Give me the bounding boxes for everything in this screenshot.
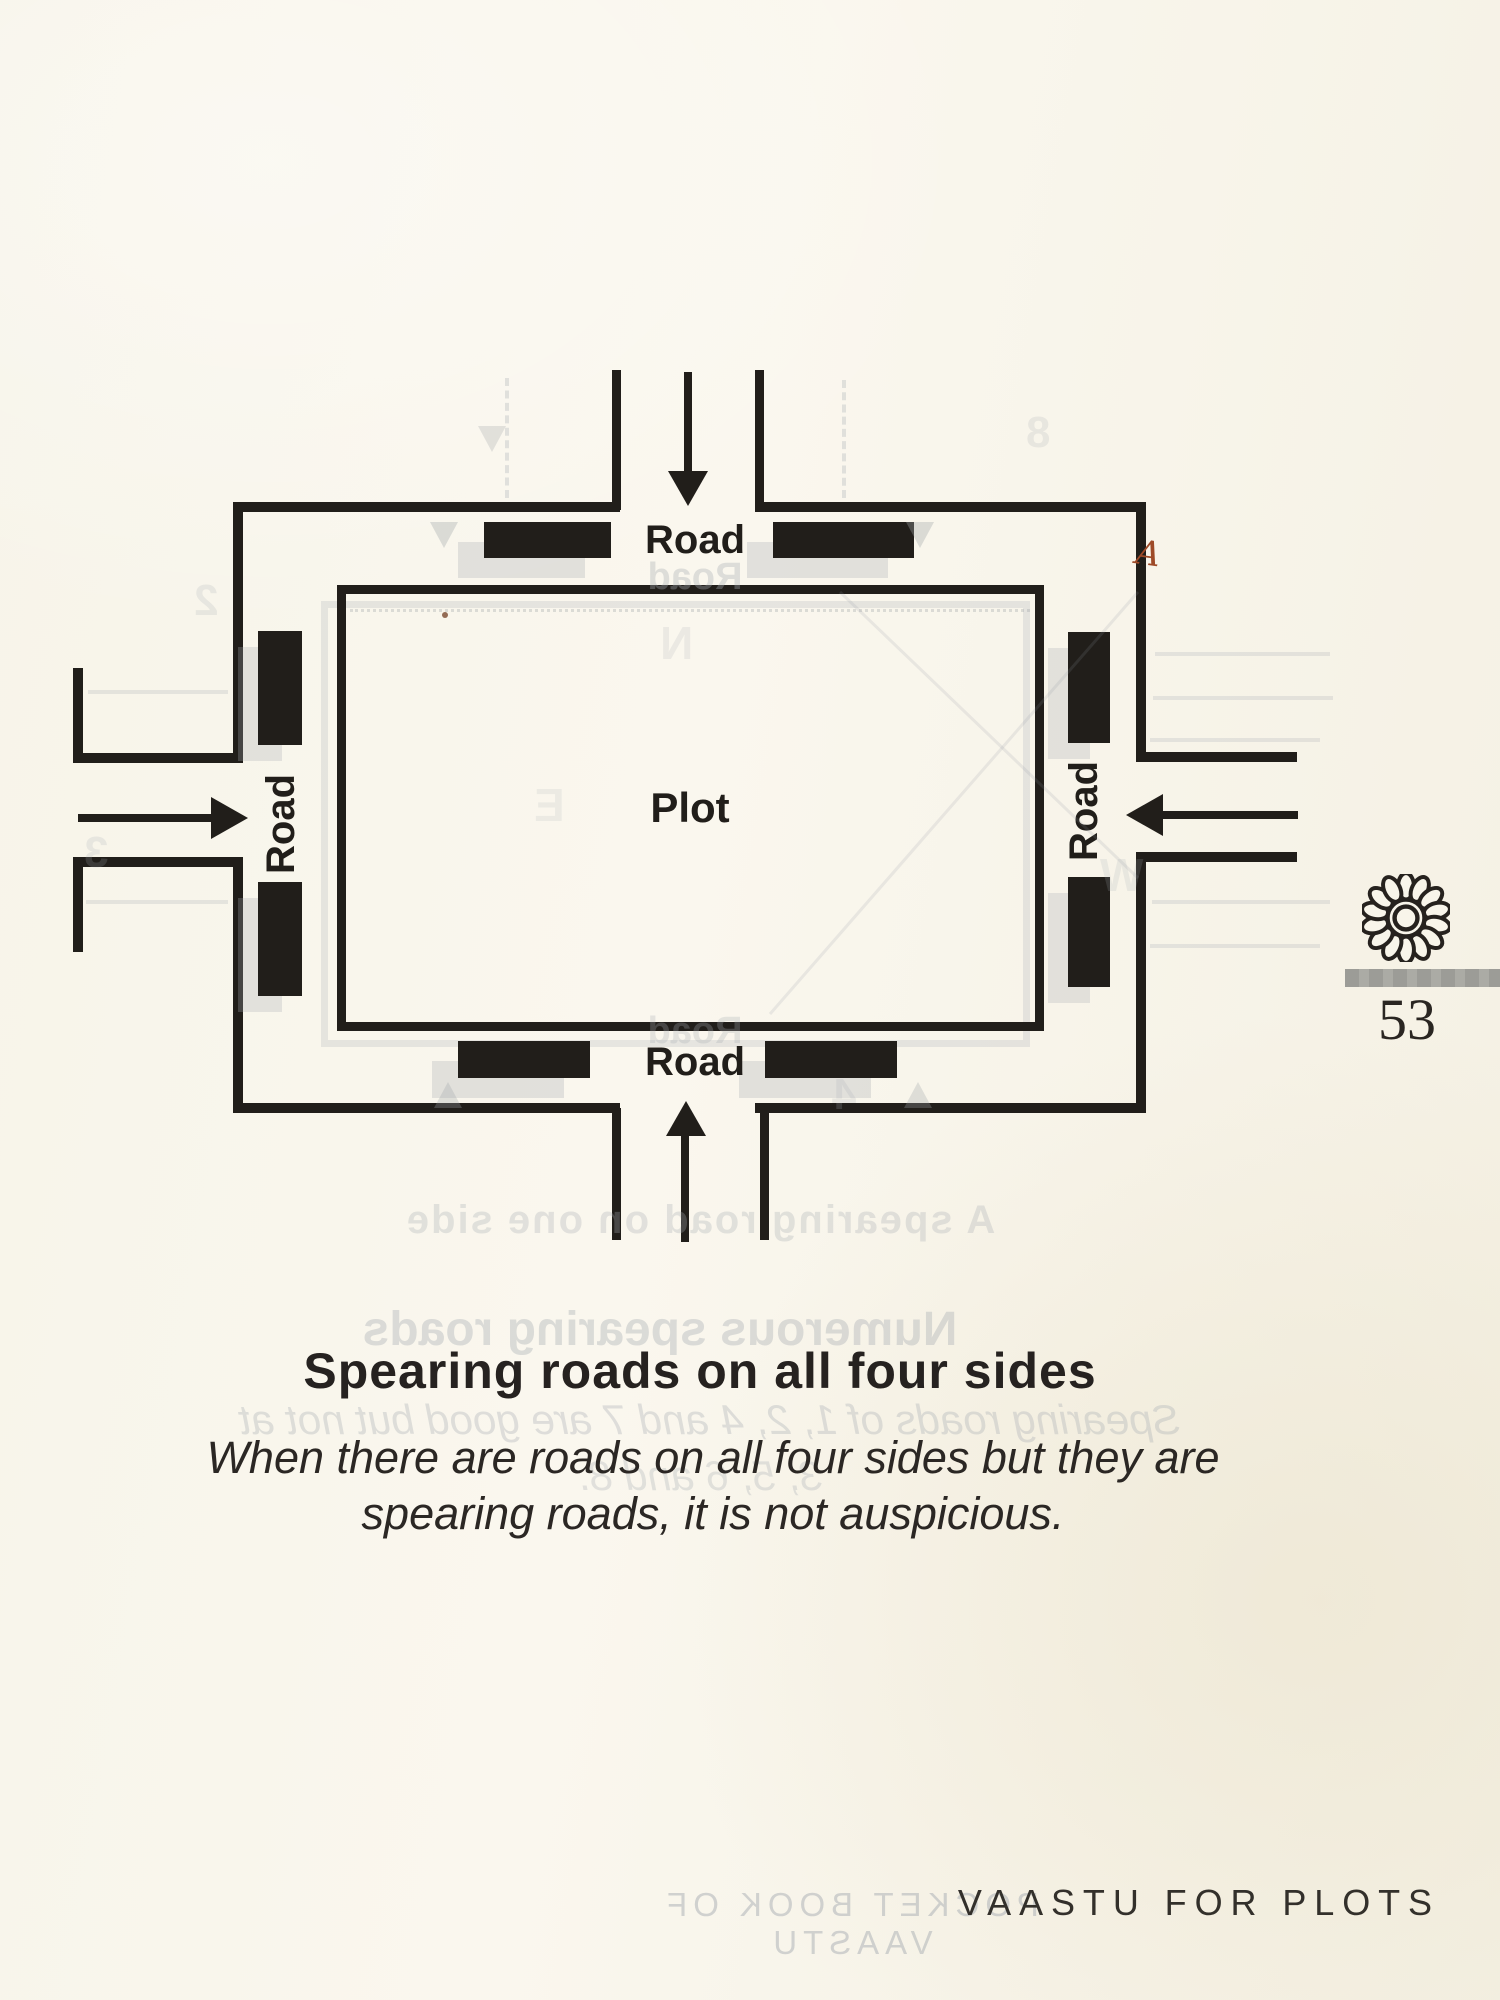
caption-body-line-2: spearing roads, it is not auspicious. xyxy=(60,1488,1366,1540)
bleed-through-arrow-down-icon xyxy=(478,426,506,452)
section-rule xyxy=(1345,969,1500,987)
bleed-through-streak xyxy=(1150,944,1320,948)
caption-title: Spearing roads on all four sides xyxy=(95,1342,1305,1400)
bleed-through-road-bottom: Road xyxy=(630,1010,760,1053)
bleed-through-figure-caption: A spearing road on one side xyxy=(330,1198,1070,1243)
bleed-through-streak xyxy=(1150,738,1320,742)
caption-body-line-1: When there are roads on all four sides b… xyxy=(60,1432,1366,1484)
bleed-through-letter-e: E xyxy=(534,778,565,832)
bleed-through-number-3: 3 xyxy=(84,828,108,878)
bleed-through-number-8: 8 xyxy=(1026,408,1050,458)
bleed-through-arrow-down-icon xyxy=(430,522,458,548)
bleed-through-streak xyxy=(1153,696,1333,700)
bleed-through-arrow-up-icon xyxy=(434,1082,462,1108)
bleed-through-streak xyxy=(1152,900,1330,904)
bleed-through-dotted-line xyxy=(350,609,1030,612)
bleed-through-streak xyxy=(86,900,228,904)
page-number: 53 xyxy=(1352,986,1462,1053)
footer-title: VAASTU FOR PLOTS xyxy=(790,1882,1440,1924)
bleed-through-number-2: 2 xyxy=(194,576,218,626)
bleed-through-dashed-line xyxy=(505,378,509,498)
bleed-through-streak xyxy=(1155,652,1330,656)
bleed-through-arrow-down-icon xyxy=(906,522,934,548)
bleed-through-number-4: 4 xyxy=(832,1070,856,1120)
bleed-through-letter-n: N xyxy=(660,616,693,670)
bleed-through-arrow-up-icon xyxy=(904,1082,932,1108)
sunflower-icon xyxy=(1362,874,1450,962)
bleed-through-dashed-line xyxy=(842,380,846,498)
bleed-through-streak xyxy=(88,690,228,694)
bleed-through-diagonals xyxy=(0,0,1500,2000)
bleed-through-letter-w: W xyxy=(1100,848,1143,902)
bleed-through-road-top: Road xyxy=(630,556,760,599)
book-page: Plot Road Road Road Road A Road Road N W… xyxy=(0,0,1500,2000)
